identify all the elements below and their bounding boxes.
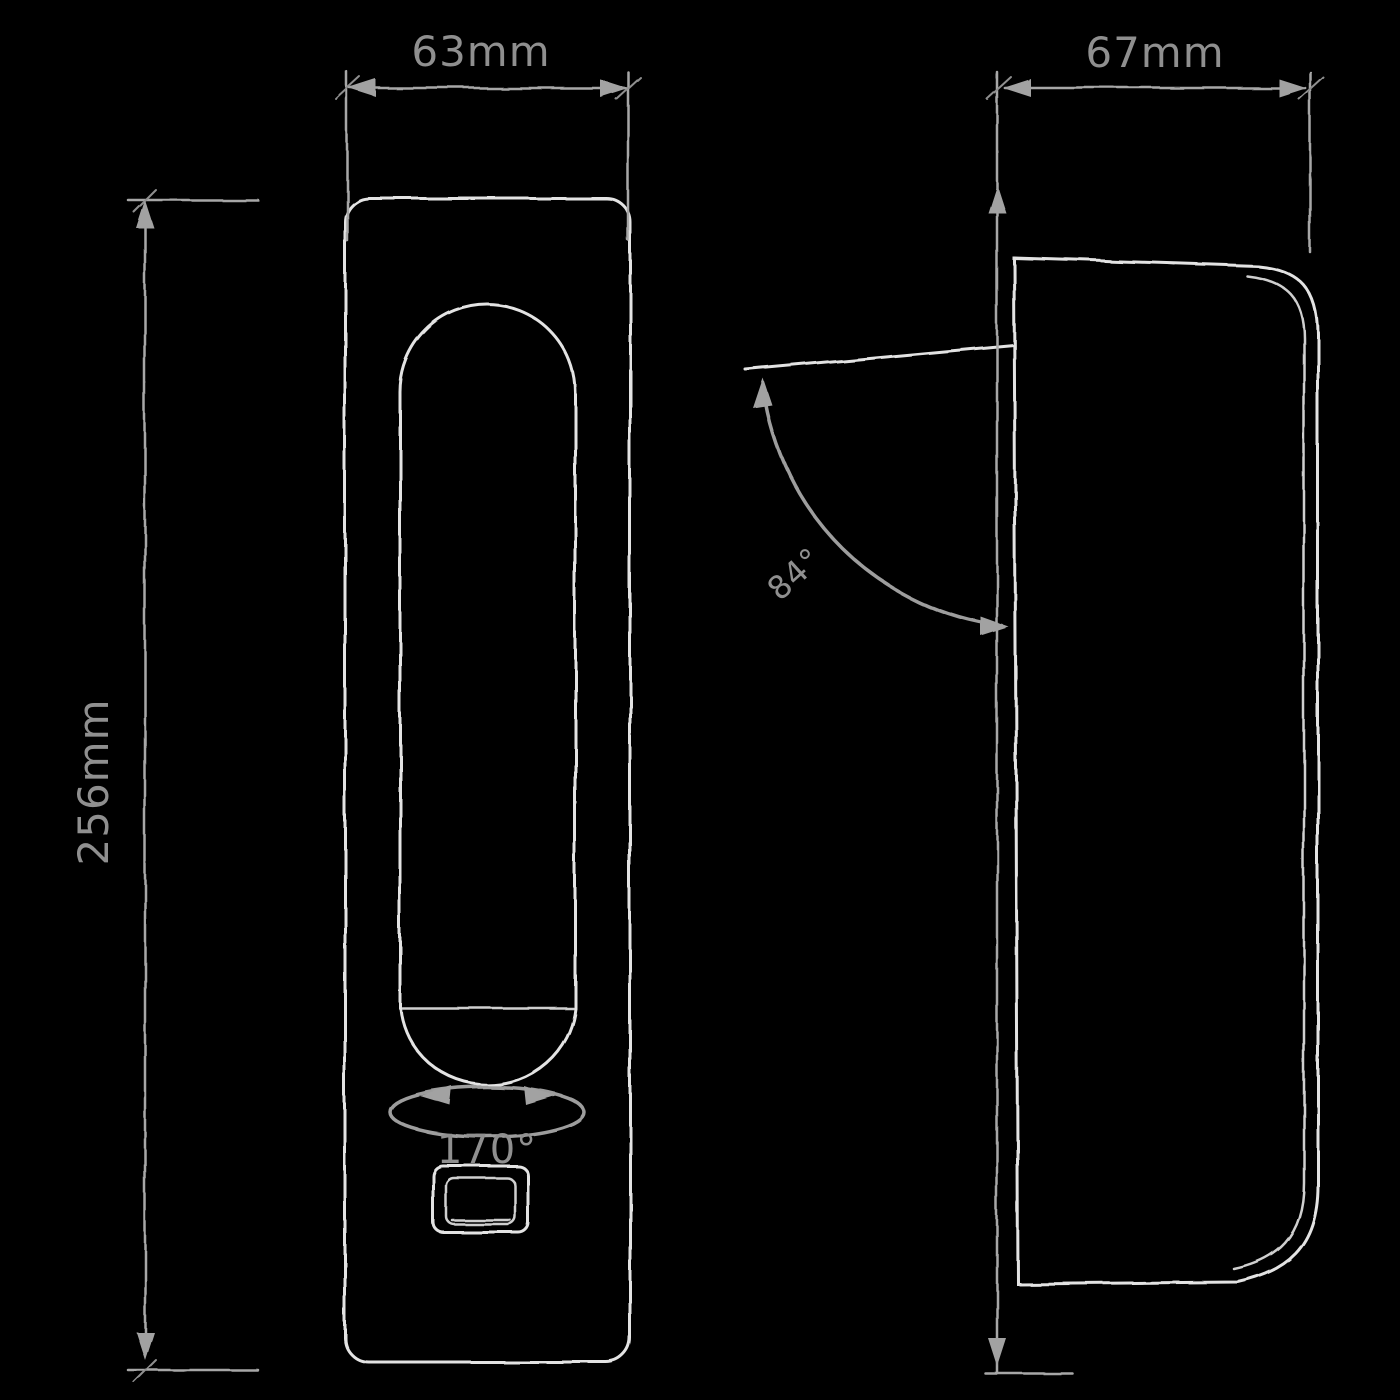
technical-drawing-page: 63mm 67mm 256mm 170° 84° <box>0 0 1400 1400</box>
dimension-drawing: 63mm 67mm 256mm 170° 84° <box>0 0 1400 1400</box>
noise-overlay <box>0 0 1400 1400</box>
